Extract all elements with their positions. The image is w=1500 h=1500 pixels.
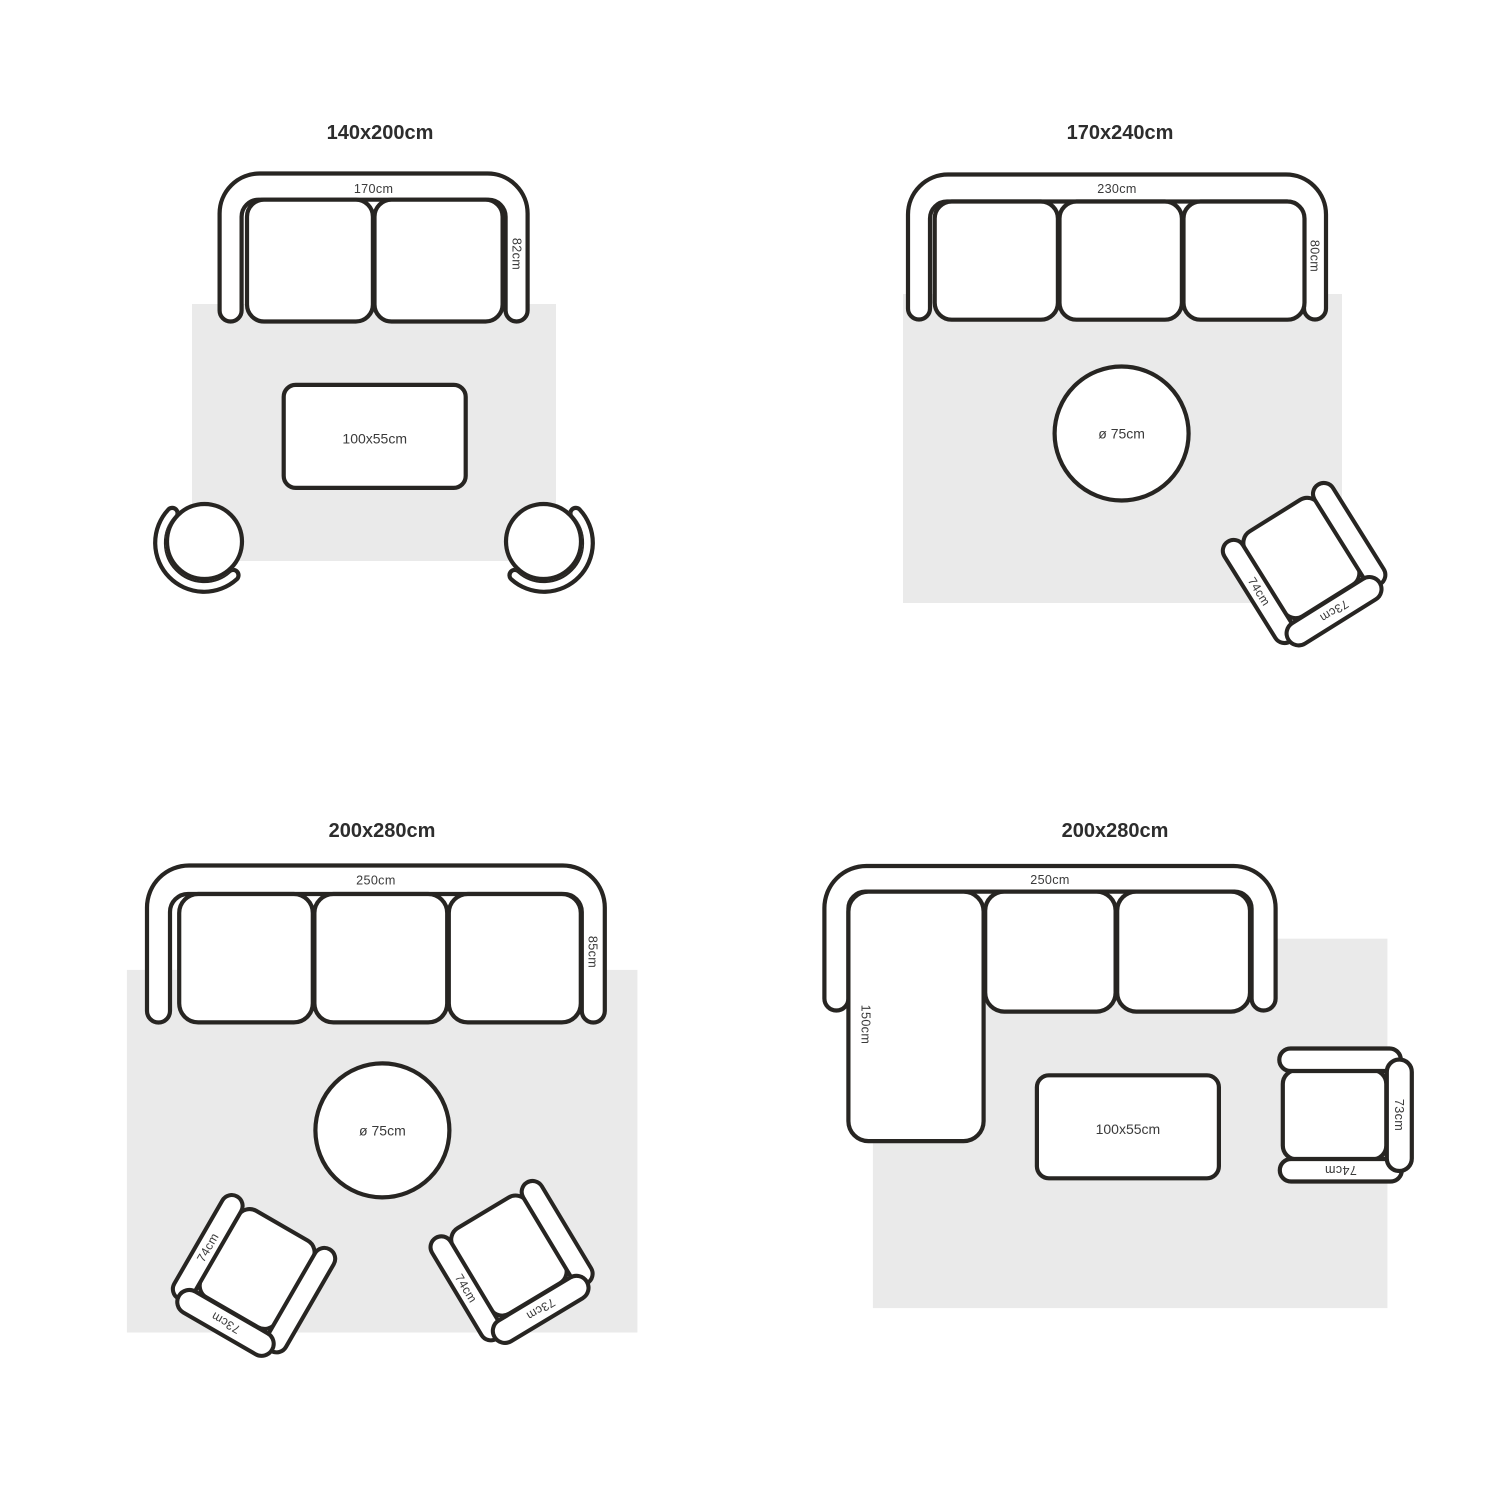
svg-text:230cm: 230cm xyxy=(1097,182,1137,196)
svg-text:170x240cm: 170x240cm xyxy=(1067,122,1174,144)
svg-text:200x280cm: 200x280cm xyxy=(1062,820,1169,842)
svg-text:80cm: 80cm xyxy=(1308,240,1322,272)
svg-text:150cm: 150cm xyxy=(859,1005,873,1045)
svg-text:170cm: 170cm xyxy=(354,182,394,196)
svg-text:82cm: 82cm xyxy=(509,238,523,270)
svg-text:140x200cm: 140x200cm xyxy=(327,122,434,144)
svg-text:73cm: 73cm xyxy=(1392,1099,1406,1131)
svg-text:250cm: 250cm xyxy=(1030,873,1070,887)
svg-text:200x280cm: 200x280cm xyxy=(329,820,436,842)
svg-text:250cm: 250cm xyxy=(356,874,396,888)
svg-text:74cm: 74cm xyxy=(1325,1163,1357,1177)
svg-text:85cm: 85cm xyxy=(586,936,600,968)
